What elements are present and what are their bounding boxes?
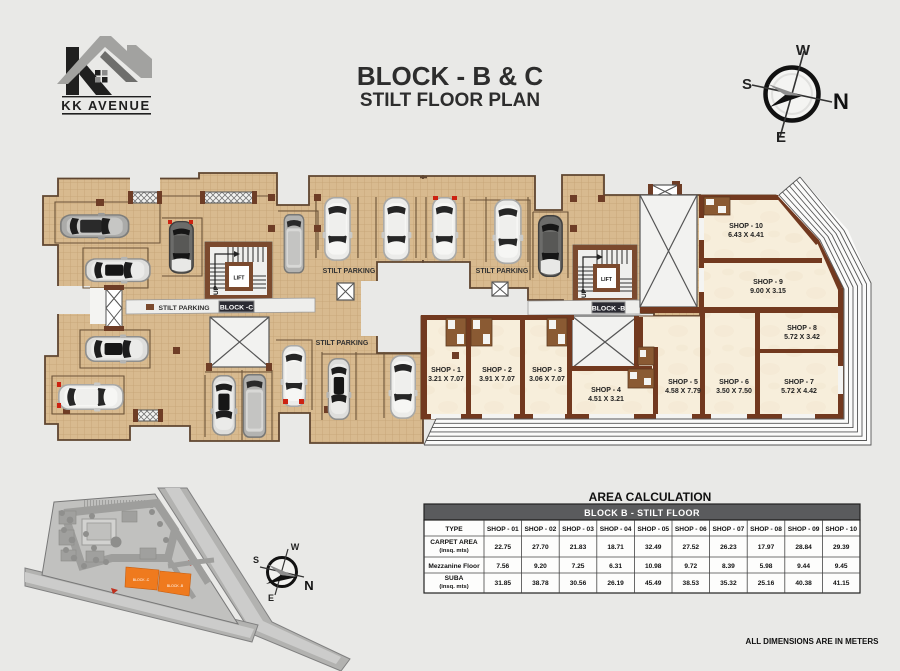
svg-text:SHOP - 10: SHOP - 10 xyxy=(825,526,857,533)
svg-text:4.58 X 7.79: 4.58 X 7.79 xyxy=(665,388,701,395)
svg-text:5.98: 5.98 xyxy=(760,563,773,570)
svg-text:SHOP - 3: SHOP - 3 xyxy=(532,367,562,374)
svg-text:W: W xyxy=(796,42,811,59)
svg-text:32.49: 32.49 xyxy=(645,544,662,551)
svg-text:SHOP - 9: SHOP - 9 xyxy=(753,279,783,286)
svg-text:BLOCK B - STILT FLOOR: BLOCK B - STILT FLOOR xyxy=(584,508,700,518)
svg-text:6.43 X 4.41: 6.43 X 4.41 xyxy=(728,232,764,239)
svg-text:STILT PARKING: STILT PARKING xyxy=(158,305,209,312)
svg-text:38.78: 38.78 xyxy=(532,580,549,587)
svg-text:31.85: 31.85 xyxy=(495,580,512,587)
svg-text:Mezzanine Floor: Mezzanine Floor xyxy=(428,563,480,570)
svg-text:30.56: 30.56 xyxy=(570,580,587,587)
svg-text:26.19: 26.19 xyxy=(607,580,624,587)
svg-text:25.16: 25.16 xyxy=(758,580,775,587)
svg-text:18.71: 18.71 xyxy=(607,544,624,551)
svg-text:17.97: 17.97 xyxy=(758,544,775,551)
svg-text:35.32: 35.32 xyxy=(720,580,737,587)
svg-text:10.98: 10.98 xyxy=(645,563,662,570)
svg-text:SHOP - 07: SHOP - 07 xyxy=(713,526,745,533)
svg-text:STILT PARKING: STILT PARKING xyxy=(476,268,529,275)
svg-text:UP: UP xyxy=(213,285,220,295)
svg-text:22.75: 22.75 xyxy=(495,544,512,551)
svg-text:SHOP - 01: SHOP - 01 xyxy=(487,526,519,533)
svg-text:SHOP - 05: SHOP - 05 xyxy=(637,526,669,533)
svg-text:7.25: 7.25 xyxy=(572,563,585,570)
svg-text:5.72 X 3.42: 5.72 X 3.42 xyxy=(784,334,820,341)
svg-text:BLOCK - B & C: BLOCK - B & C xyxy=(357,61,544,91)
svg-text:9.45: 9.45 xyxy=(835,563,848,570)
svg-text:6.31: 6.31 xyxy=(609,563,622,570)
svg-text:38.53: 38.53 xyxy=(683,580,700,587)
svg-text:SHOP - 7: SHOP - 7 xyxy=(784,379,814,386)
svg-text:8.39: 8.39 xyxy=(722,563,735,570)
svg-text:BLOCK -B: BLOCK -B xyxy=(167,584,184,588)
svg-text:SHOP - 4: SHOP - 4 xyxy=(591,387,621,394)
svg-text:N: N xyxy=(304,578,313,593)
svg-text:4.51 X 3.21: 4.51 X 3.21 xyxy=(588,396,624,403)
svg-text:3.91 X 7.07: 3.91 X 7.07 xyxy=(479,376,515,383)
svg-text:SHOP - 06: SHOP - 06 xyxy=(675,526,707,533)
svg-text:BLOCK -B: BLOCK -B xyxy=(592,306,625,313)
svg-text:27.52: 27.52 xyxy=(683,544,700,551)
svg-text:STILT PARKING: STILT PARKING xyxy=(323,268,376,275)
svg-text:SHOP - 6: SHOP - 6 xyxy=(719,379,749,386)
svg-text:SHOP - 04: SHOP - 04 xyxy=(600,526,632,533)
svg-text:STILT FLOOR PLAN: STILT FLOOR PLAN xyxy=(360,90,540,111)
svg-text:SHOP - 09: SHOP - 09 xyxy=(788,526,820,533)
svg-text:SUBA: SUBA xyxy=(445,575,464,582)
svg-text:26.23: 26.23 xyxy=(720,544,737,551)
svg-text:SHOP - 1: SHOP - 1 xyxy=(431,367,461,374)
svg-text:7.56: 7.56 xyxy=(496,563,509,570)
svg-text:BLOCK -C: BLOCK -C xyxy=(220,305,253,312)
svg-text:S: S xyxy=(742,76,752,93)
svg-text:9.44: 9.44 xyxy=(797,563,810,570)
svg-text:W: W xyxy=(291,542,300,552)
svg-text:SHOP - 8: SHOP - 8 xyxy=(787,325,817,332)
svg-text:SHOP - 02: SHOP - 02 xyxy=(525,526,557,533)
svg-text:3.50 X 7.50: 3.50 X 7.50 xyxy=(716,388,752,395)
svg-text:3.06 X 7.07: 3.06 X 7.07 xyxy=(529,376,565,383)
svg-text:(insq. mts): (insq. mts) xyxy=(439,548,468,554)
svg-text:(insq. mts): (insq. mts) xyxy=(439,584,468,590)
svg-text:LIFT: LIFT xyxy=(234,276,246,282)
svg-text:40.38: 40.38 xyxy=(795,580,812,587)
svg-text:SHOP - 10: SHOP - 10 xyxy=(729,223,763,230)
svg-text:SHOP - 2: SHOP - 2 xyxy=(482,367,512,374)
svg-text:5.72 X 4.42: 5.72 X 4.42 xyxy=(781,388,817,395)
svg-text:3.21 X 7.07: 3.21 X 7.07 xyxy=(428,376,464,383)
svg-text:S: S xyxy=(253,555,259,565)
svg-text:SHOP - 03: SHOP - 03 xyxy=(562,526,594,533)
svg-text:SHOP - 5: SHOP - 5 xyxy=(668,379,698,386)
svg-text:LIFT: LIFT xyxy=(601,277,613,283)
svg-text:UP: UP xyxy=(581,288,588,298)
svg-text:9.00 X 3.15: 9.00 X 3.15 xyxy=(750,288,786,295)
svg-text:28.84: 28.84 xyxy=(795,544,812,551)
svg-text:45.49: 45.49 xyxy=(645,580,662,587)
svg-text:STILT PARKING: STILT PARKING xyxy=(316,340,369,347)
svg-text:29.39: 29.39 xyxy=(833,544,850,551)
svg-text:9.20: 9.20 xyxy=(534,563,547,570)
svg-text:21.83: 21.83 xyxy=(570,544,587,551)
svg-text:ALL DIMENSIONS ARE IN METERS: ALL DIMENSIONS ARE IN METERS xyxy=(746,637,880,646)
svg-text:KK AVENUE: KK AVENUE xyxy=(61,98,151,113)
svg-text:AREA CALCULATION: AREA CALCULATION xyxy=(589,490,712,504)
svg-text:N: N xyxy=(833,89,849,114)
svg-text:9.72: 9.72 xyxy=(684,563,697,570)
svg-text:E: E xyxy=(776,129,786,146)
svg-text:41.15: 41.15 xyxy=(833,580,850,587)
svg-text:BLOCK -C: BLOCK -C xyxy=(133,578,150,582)
svg-text:E: E xyxy=(268,593,274,603)
svg-text:CARPET AREA: CARPET AREA xyxy=(430,539,478,546)
svg-text:SHOP - 08: SHOP - 08 xyxy=(750,526,782,533)
svg-text:27.70: 27.70 xyxy=(532,544,549,551)
svg-text:TYPE: TYPE xyxy=(445,526,463,533)
